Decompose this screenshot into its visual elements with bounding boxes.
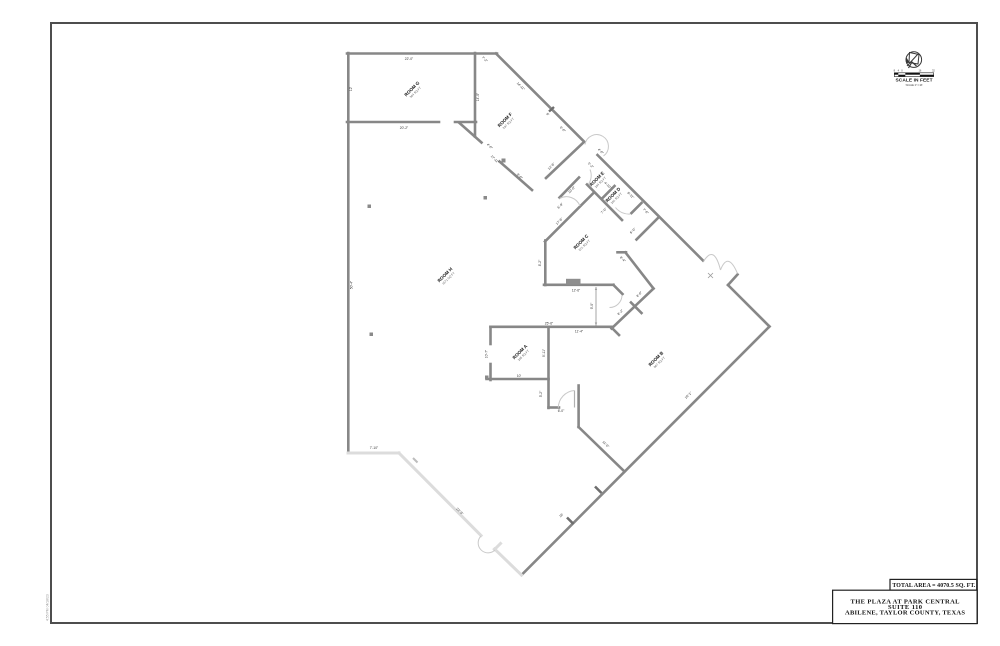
svg-text:7'-6": 7'-6" bbox=[642, 208, 650, 216]
svg-text:6'-0": 6'-0" bbox=[559, 126, 567, 134]
svg-text:5'-2": 5'-2" bbox=[539, 390, 543, 397]
svg-text:16: 16 bbox=[918, 68, 921, 72]
svg-text:6'-0": 6'-0" bbox=[558, 409, 565, 413]
svg-text:6'-8": 6'-8" bbox=[557, 201, 565, 209]
svg-text:6'-0": 6'-0" bbox=[629, 226, 637, 234]
svg-text:4: 4 bbox=[898, 68, 900, 72]
svg-text:8'-2": 8'-2" bbox=[538, 259, 542, 266]
svg-text:11'-4": 11'-4" bbox=[575, 330, 584, 334]
svg-text:7'-2": 7'-2" bbox=[481, 56, 489, 64]
svg-text:11'-6": 11'-6" bbox=[601, 440, 610, 449]
svg-text:7'-0": 7'-0" bbox=[600, 206, 608, 214]
svg-text:20'-2": 20'-2" bbox=[400, 126, 409, 130]
svg-text:32: 32 bbox=[932, 68, 935, 72]
svg-text:9'-0": 9'-0" bbox=[516, 173, 524, 181]
svg-text:16': 16' bbox=[558, 512, 564, 518]
svg-text:16'-1": 16'-1" bbox=[684, 390, 693, 399]
svg-text:50'-4": 50'-4" bbox=[350, 280, 354, 289]
svg-text:8'-2": 8'-2" bbox=[617, 308, 625, 316]
svg-text:8': 8' bbox=[545, 112, 550, 117]
svg-text:25'-6": 25'-6" bbox=[545, 322, 554, 326]
svg-text:10': 10' bbox=[517, 374, 522, 378]
svg-text:12'-6": 12'-6" bbox=[572, 289, 581, 293]
svg-text:10'-7": 10'-7" bbox=[485, 349, 489, 358]
svg-text:SCALE: 1" = 16': SCALE: 1" = 16' bbox=[906, 83, 923, 87]
svg-text:TOTAL AREA = 4070.5 SQ. FT.: TOTAL AREA = 4070.5 SQ. FT. bbox=[892, 583, 976, 589]
svg-text:22'-0": 22'-0" bbox=[405, 57, 414, 61]
svg-text:7'-10": 7'-10" bbox=[370, 446, 379, 450]
svg-text:0: 0 bbox=[901, 68, 903, 72]
svg-text:9'-11": 9'-11" bbox=[542, 348, 546, 357]
svg-text:8'-4": 8'-4" bbox=[619, 256, 627, 264]
svg-text:5'-2": 5'-2" bbox=[587, 162, 595, 170]
svg-text:4:55 PM 04/18/23: 4:55 PM 04/18/23 bbox=[46, 594, 50, 621]
svg-text:14'-0": 14'-0" bbox=[476, 92, 480, 101]
svg-text:9'-0": 9'-0" bbox=[590, 302, 594, 309]
svg-text:12': 12' bbox=[349, 86, 353, 91]
svg-text:8: 8 bbox=[894, 68, 896, 72]
svg-text:4'-0": 4'-0" bbox=[486, 143, 494, 151]
svg-text:ABILENE, TAYLOR COUNTY, TEXAS: ABILENE, TAYLOR COUNTY, TEXAS bbox=[845, 610, 965, 617]
svg-text:17'-11": 17'-11" bbox=[490, 154, 500, 164]
svg-text:8'-0": 8'-0" bbox=[636, 290, 644, 298]
